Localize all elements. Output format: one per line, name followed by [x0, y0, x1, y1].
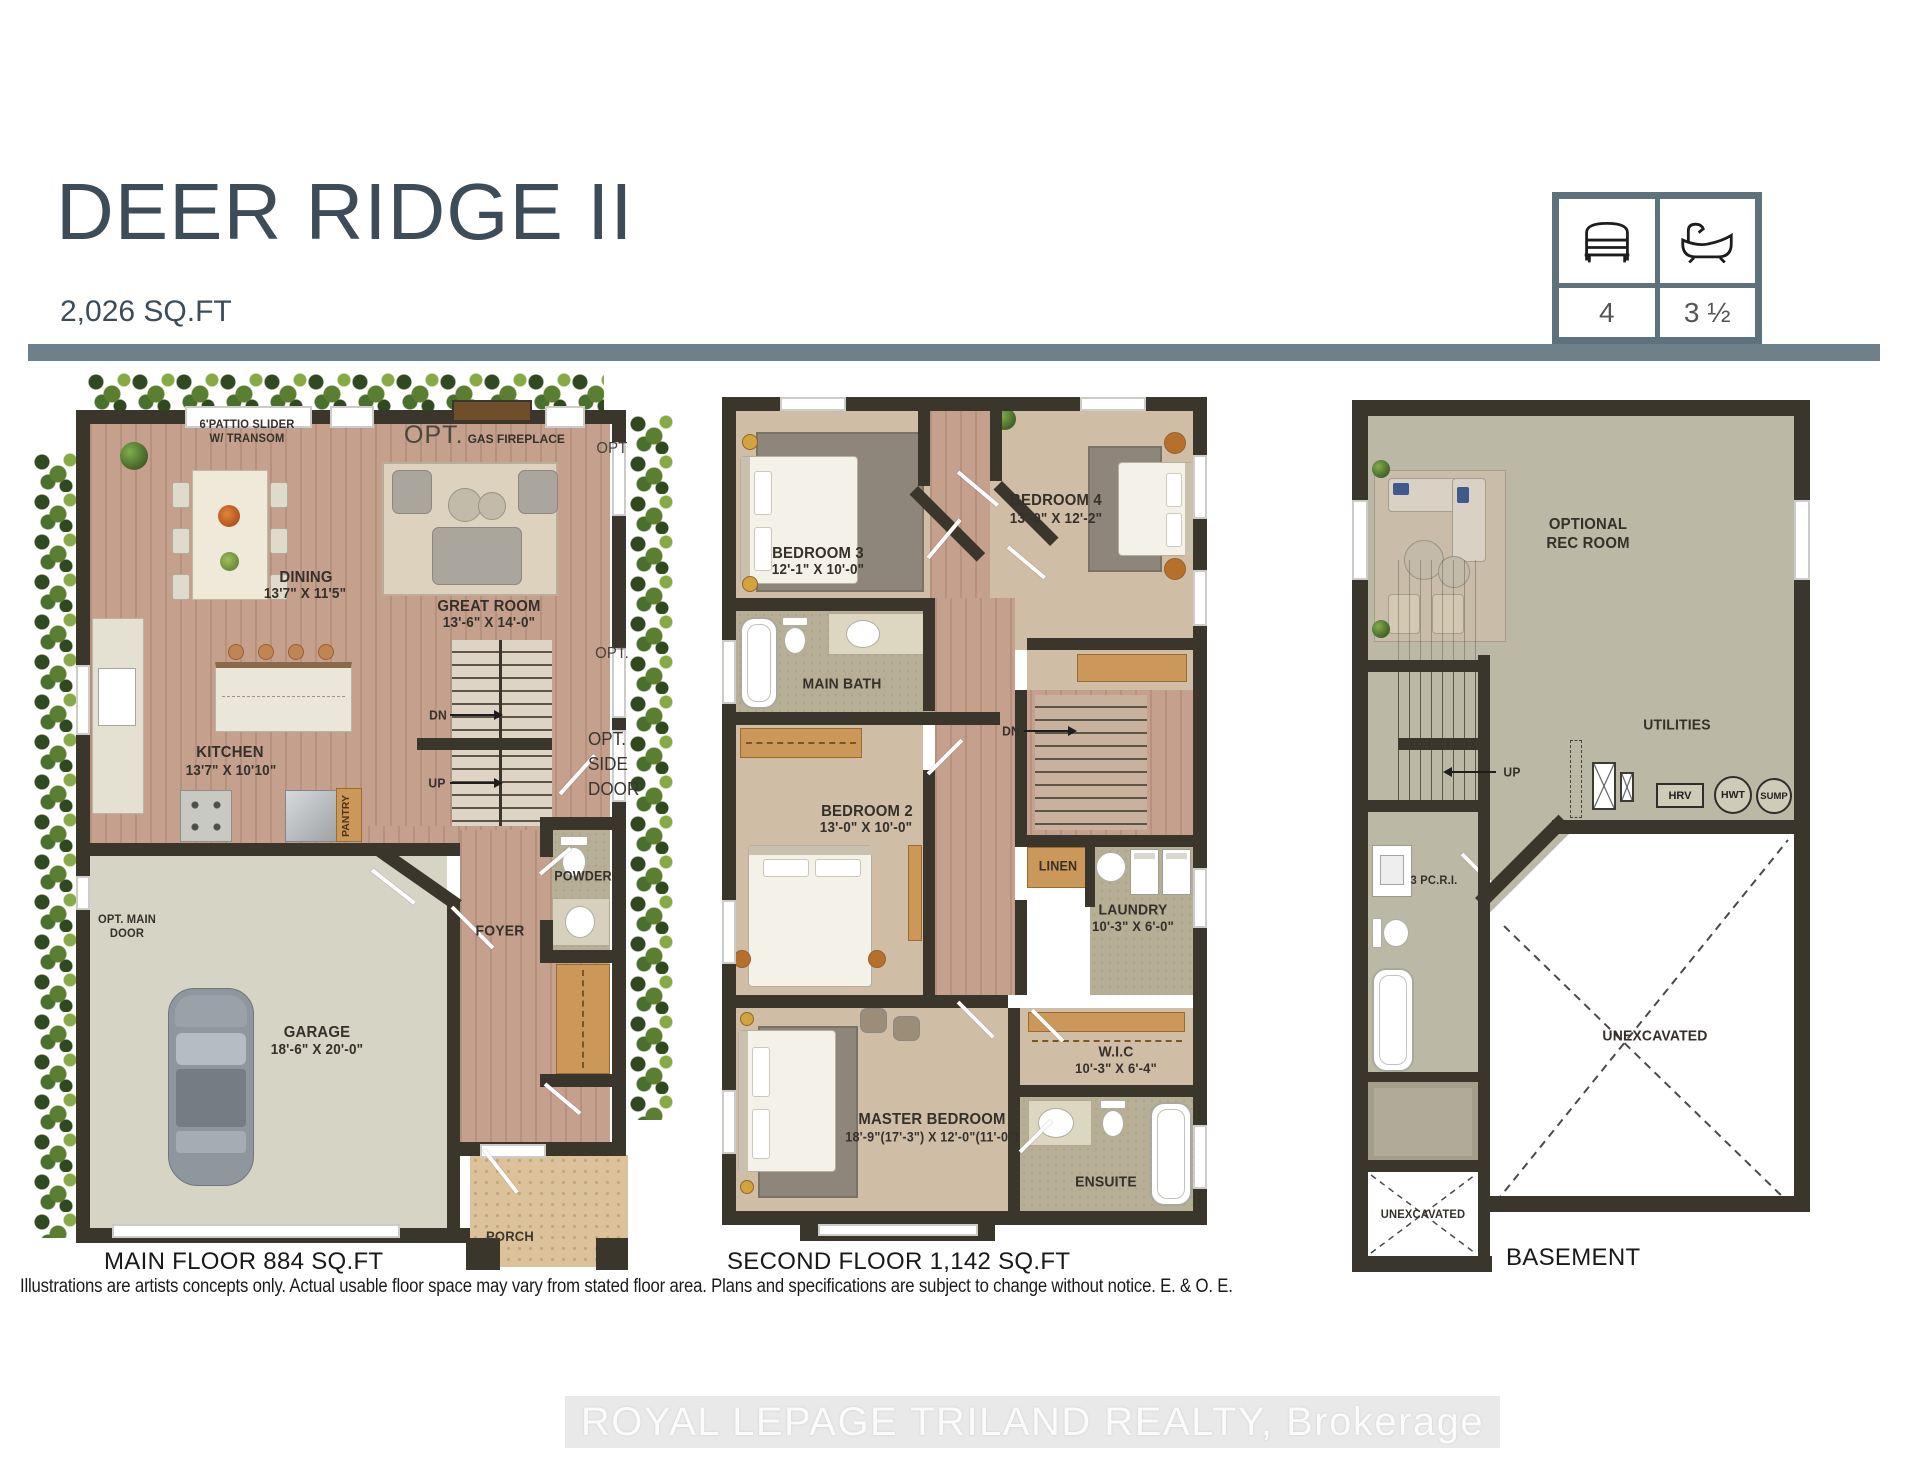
bathtub-icon	[1679, 219, 1735, 263]
car-windshield	[176, 1033, 246, 1065]
furnace	[1592, 762, 1616, 810]
wall	[923, 770, 935, 995]
wall	[1368, 800, 1490, 812]
wall	[540, 817, 553, 857]
toilet-tank	[782, 617, 808, 626]
bar-stool	[318, 644, 334, 660]
stairs-dn-label: DN	[1002, 724, 1020, 739]
basement-caption: BASEMENT	[1506, 1244, 1640, 1272]
toilet-tank	[1372, 918, 1382, 948]
master-dims: 18'-9"(17'-3") X 12'-0"(11'-0")	[845, 1130, 1018, 1145]
bar-stool	[228, 644, 244, 660]
floor-plan-sheet: DEER RIDGE II 2,026 SQ.FT 4 3 ½	[0, 0, 1920, 1484]
window	[722, 640, 736, 704]
bedroom3-dims: 12'-1" X 10'-0"	[772, 562, 864, 578]
bed-icon-cell	[1559, 199, 1655, 283]
bar-stool	[258, 644, 274, 660]
side-table	[868, 950, 886, 968]
bedroom4-closet-shelf	[1077, 654, 1187, 682]
closet-rod	[746, 742, 856, 744]
bedroom3-label: BEDROOM 3	[772, 545, 864, 563]
patio-slider-label2: W/ TRANSOM	[209, 431, 284, 445]
throw-pillow	[1393, 483, 1409, 495]
refrigerator	[285, 790, 337, 842]
bay-windows	[818, 1224, 978, 1236]
utility-unit	[1620, 772, 1634, 802]
hallway-floor	[935, 598, 1015, 995]
car-hood	[175, 995, 247, 1027]
bath-sink	[846, 620, 880, 648]
dn-arrow	[450, 714, 494, 716]
page-subtitle: 2,026 SQ.FT	[60, 297, 232, 327]
baths-count: 3 ½	[1660, 288, 1756, 337]
window	[780, 397, 846, 411]
brokerage-watermark: ROYAL LEPAGE TRILAND REALTY, Brokerage	[565, 1396, 1500, 1448]
opt-window-label: OPT.	[595, 645, 629, 663]
wall	[1352, 400, 1810, 416]
duct-dashed	[1570, 740, 1582, 818]
hrv-unit: HRV	[1656, 783, 1704, 808]
bed	[738, 1030, 836, 1172]
window	[1352, 500, 1368, 580]
window	[1193, 1125, 1207, 1189]
hwt-unit: HWT	[1714, 776, 1752, 814]
dining-dims: 13'7" X 11'5"	[264, 586, 346, 602]
up-arrow	[1452, 771, 1496, 773]
ensuite-label: ENSUITE	[1075, 1174, 1137, 1191]
utilities-label: UTILITIES	[1643, 717, 1711, 734]
wall	[1368, 1160, 1478, 1172]
dining-label: DINING	[279, 569, 332, 587]
pouf	[742, 434, 758, 450]
second-floor-caption: SECOND FLOOR 1,142 SQ.FT	[727, 1248, 1070, 1276]
toilet-bowl	[784, 627, 806, 654]
window	[1080, 397, 1146, 411]
toilet-bowl	[1102, 1110, 1124, 1137]
dining-table	[192, 470, 268, 600]
wall	[736, 712, 1000, 725]
coffee-table	[478, 492, 506, 520]
wall	[918, 411, 930, 486]
wall	[76, 410, 90, 1243]
wic-label: W.I.C	[1098, 1044, 1133, 1061]
bed	[748, 845, 872, 987]
toilet-tank	[560, 836, 588, 846]
wall	[736, 598, 935, 611]
bedroom2-dims: 13'-0" X 10'-0"	[820, 820, 912, 836]
stairwell-open-dashes	[1398, 560, 1478, 660]
up-arrow	[450, 782, 494, 784]
window	[722, 1090, 736, 1154]
wall	[1368, 660, 1478, 672]
bed-bath-stats-box: 4 3 ½	[1552, 192, 1762, 344]
bath-counter	[828, 613, 935, 655]
closet-rod	[582, 970, 584, 1068]
wall	[90, 843, 460, 856]
laundry-label: LAUNDRY	[1099, 902, 1168, 919]
window	[1193, 868, 1207, 928]
fireplace-label: OPT.GAS FIREPLACE	[404, 421, 565, 450]
master-label: MASTER BEDROOM	[858, 1111, 1005, 1129]
fireplace	[452, 400, 532, 422]
stair-rail	[499, 640, 502, 826]
window	[1193, 570, 1207, 626]
car-roof	[176, 1069, 246, 1127]
dining-chair	[270, 528, 288, 554]
window	[1193, 455, 1207, 519]
food-platter	[220, 552, 239, 571]
accent-chair	[893, 1016, 920, 1041]
stairs-up-label: UP	[1503, 765, 1520, 780]
sofa	[432, 527, 522, 585]
toilet-bowl	[1383, 919, 1409, 947]
dining-chair	[172, 574, 190, 600]
armchair	[518, 470, 558, 514]
bedroom4-label: BEDROOM 4	[1010, 492, 1102, 510]
chair-round	[1164, 432, 1186, 454]
wall	[1478, 655, 1490, 812]
food-platter	[218, 505, 240, 527]
wall	[1478, 812, 1490, 1256]
laundry-sink	[1096, 852, 1126, 882]
accent-chair	[860, 1008, 887, 1033]
bedroom2-label: BEDROOM 2	[821, 803, 913, 821]
rough-in-label: 3 PC.R.I.	[1411, 873, 1458, 887]
rec-room-label: OPTIONAL	[1549, 516, 1627, 534]
side-door-label: OPT. SIDE DOOR	[588, 727, 639, 802]
divider-bar	[28, 344, 1880, 361]
dining-chair	[172, 528, 190, 554]
window	[330, 406, 374, 428]
garage-label: GARAGE	[284, 1024, 350, 1042]
washer	[1130, 849, 1159, 895]
ensuite-sink	[1038, 1108, 1074, 1138]
throw-pillow	[1457, 487, 1469, 503]
great-room-dims: 13'-6" X 14'-0"	[443, 615, 535, 631]
stairs-up-label: UP	[428, 776, 445, 791]
bathtub	[1150, 1102, 1192, 1206]
wall	[1552, 820, 1794, 834]
wall	[1008, 1008, 1020, 1211]
hall-floor	[368, 826, 460, 844]
pantry-label: PANTRY	[340, 789, 360, 843]
foyer-label: FOYER	[476, 923, 525, 940]
wic-rod	[1032, 1040, 1182, 1042]
opt-window-label: OPT	[596, 440, 627, 458]
powder-label: POWDER	[554, 869, 612, 884]
wic-dims: 10'-3" X 6'-4"	[1075, 1060, 1157, 1076]
main-stairs	[452, 640, 552, 826]
plant	[1372, 620, 1390, 638]
stair-mid-wall	[452, 738, 552, 750]
wall	[1368, 1072, 1478, 1082]
dining-chair	[172, 482, 190, 508]
wall	[990, 411, 1002, 481]
bathtub	[740, 617, 778, 709]
bar-stool	[288, 644, 304, 660]
plant	[1372, 460, 1390, 478]
sump-unit: SUMP	[1756, 778, 1792, 814]
chair-round	[1164, 558, 1186, 580]
side-table	[740, 1180, 754, 1194]
wall	[1015, 900, 1027, 995]
kitchen-label: KITCHEN	[196, 744, 263, 762]
bath-icon-cell	[1660, 199, 1756, 283]
bed-icon	[1581, 219, 1633, 263]
wall	[1352, 1256, 1492, 1272]
unexcavated-label: UNEXCAVATED	[1602, 1028, 1707, 1045]
stairs-dn-label: DN	[429, 708, 447, 723]
wall	[736, 995, 1008, 1008]
stove	[180, 790, 232, 842]
armchair	[392, 470, 432, 514]
kitchen-dims: 13'7" X 10'10"	[186, 763, 277, 779]
car-rear-window	[176, 1131, 246, 1153]
wall	[1015, 690, 1027, 847]
window	[76, 665, 90, 735]
wall	[1027, 638, 1193, 650]
toilet-tank	[1100, 1100, 1126, 1109]
wall	[540, 920, 553, 963]
window	[722, 900, 736, 964]
kitchen-island	[215, 662, 352, 732]
unexcavated-area	[1490, 834, 1794, 1208]
bathtub	[1372, 968, 1414, 1072]
desk	[908, 845, 922, 941]
linen-label: LINEN	[1039, 859, 1078, 874]
wall	[1398, 738, 1490, 750]
wall	[540, 1074, 626, 1087]
wall	[1193, 397, 1207, 1225]
wall	[923, 611, 935, 711]
main-floor-caption: MAIN FLOOR 884 SQ.FT	[104, 1248, 383, 1276]
wall	[1085, 847, 1095, 907]
car	[168, 988, 254, 1186]
dining-chair	[270, 482, 288, 508]
landscaping-left	[34, 452, 80, 1238]
wall	[1490, 1196, 1810, 1212]
beds-count: 4	[1559, 288, 1655, 337]
bedroom4-dims: 13'-0" X 12'-2"	[1010, 511, 1102, 527]
ri-sink	[1380, 855, 1404, 885]
main-door-label2: DOOR	[110, 926, 144, 940]
disclaimer-text: Illustrations are artists concepts only.…	[20, 1276, 1233, 1298]
dryer	[1162, 849, 1191, 895]
wall	[1020, 1085, 1193, 1097]
patio-slider-label: 6'PATTIO SLIDER	[200, 417, 295, 431]
dn-arrow	[1024, 730, 1068, 732]
kitchen-sink	[98, 668, 136, 726]
wall	[447, 900, 460, 1240]
bed	[1118, 462, 1194, 556]
powder-sink	[565, 906, 595, 938]
coffee-table	[448, 488, 482, 522]
unexcavated-small-label: UNEXCAVATED	[1381, 1207, 1466, 1221]
main-bath-label: MAIN BATH	[803, 676, 882, 693]
second-floor-stairs	[1035, 695, 1147, 830]
garage-dims: 18'-6" X 20'-0"	[271, 1042, 363, 1058]
wall	[1015, 835, 1193, 847]
cold-cellar	[1368, 1082, 1478, 1162]
stair-stub-wall	[417, 738, 453, 750]
porch-label: PORCH	[486, 1228, 534, 1244]
laundry-dims: 10'-3" X 6'-0"	[1092, 918, 1174, 934]
porch-post	[596, 1238, 628, 1270]
side-table	[740, 1012, 754, 1026]
main-door-label: OPT. MAIN	[98, 912, 156, 926]
plant	[120, 442, 148, 470]
window	[1794, 500, 1810, 580]
rec-room-label2: REC ROOM	[1546, 535, 1629, 553]
door-opening	[76, 876, 90, 910]
great-room-label: GREAT ROOM	[437, 598, 540, 616]
garage-door	[112, 1224, 400, 1238]
island-dashed-line	[222, 696, 345, 697]
page-title: DEER RIDGE II	[56, 172, 634, 252]
pouf	[742, 576, 758, 592]
